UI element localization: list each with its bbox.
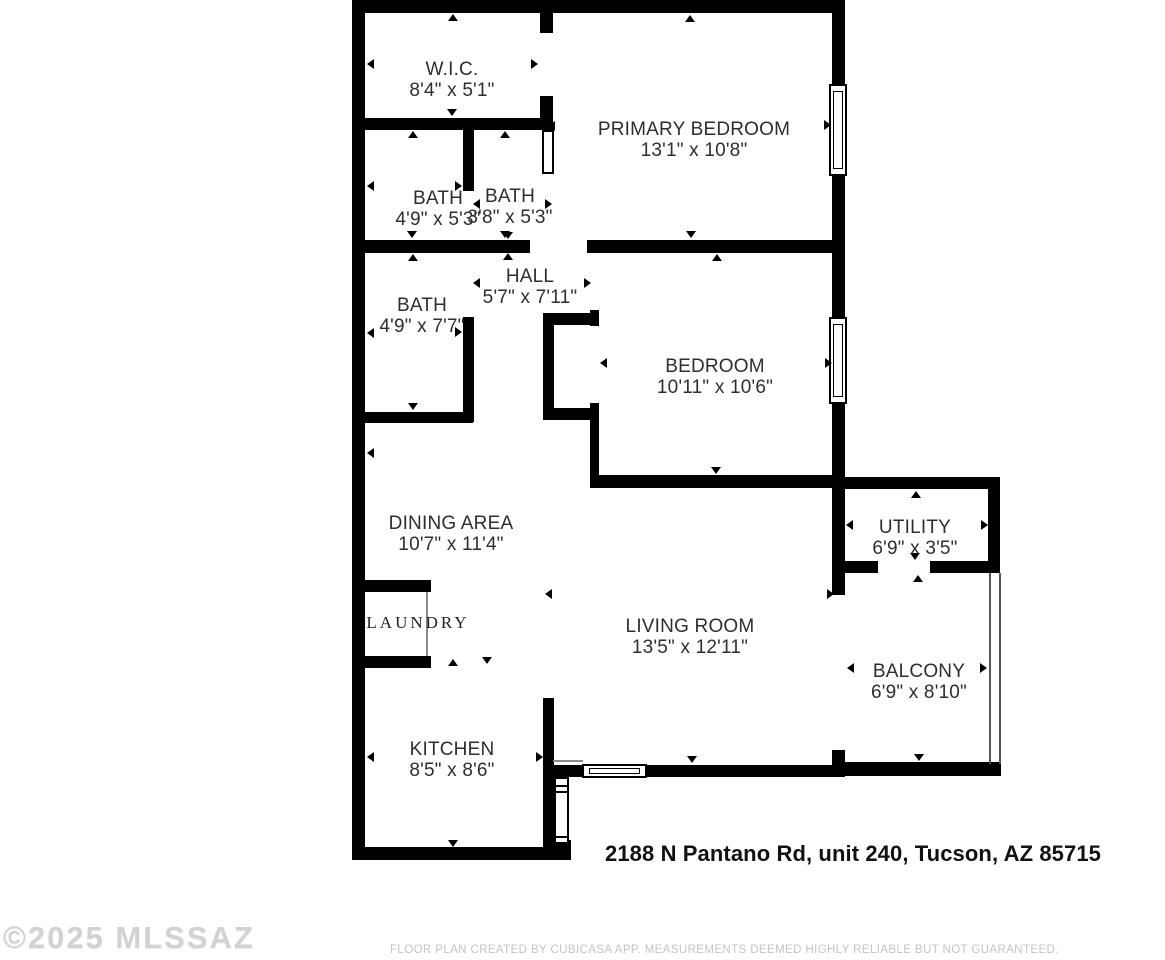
dimension-arrow (911, 491, 921, 498)
room-label-kitchen-12: KITCHEN8'5" x 8'6" (322, 739, 582, 781)
room-dimensions: 10'7" x 11'4" (321, 534, 581, 555)
room-label-bath-3: BATH3'8" x 5'3" (380, 186, 640, 228)
wall-segment (352, 580, 431, 592)
room-label-primary-bedroom-1: PRIMARY BEDROOM13'1" x 10'8" (564, 119, 824, 161)
window-pane (833, 91, 843, 169)
room-label-laundry-9: LAUNDRY (288, 612, 548, 633)
room-label-bedroom-6: BEDROOM10'11" x 10'6" (585, 356, 845, 398)
mls-watermark: ©2025 MLSSAZ (3, 920, 255, 956)
room-dimensions: 13'5" x 12'11" (560, 637, 820, 658)
wall-segment (352, 0, 845, 13)
room-name: BALCONY (789, 661, 1049, 682)
room-dimensions: 3'8" x 5'3" (380, 207, 640, 228)
room-label-balcony-11: BALCONY6'9" x 8'10" (789, 661, 1049, 703)
dimension-arrow (448, 14, 458, 21)
room-dimensions: 6'9" x 3'5" (785, 538, 1045, 559)
wall-segment (845, 561, 878, 573)
wall-segment (463, 127, 474, 191)
window-symbol (582, 764, 647, 778)
room-name: BATH (380, 186, 640, 207)
wall-segment (540, 0, 553, 33)
room-dimensions: 8'4" x 5'1" (322, 80, 582, 101)
dimension-arrow (447, 109, 457, 116)
wall-segment (587, 240, 845, 253)
room-name: HALL (400, 266, 660, 287)
property-address: 2188 N Pantano Rd, unit 240, Tucson, AZ … (605, 841, 1101, 867)
wall-segment (930, 561, 1000, 573)
dimension-arrow (548, 121, 555, 131)
dimension-arrow (827, 589, 834, 599)
room-label-bath-5: BATH4'9" x 7'7" (292, 295, 552, 337)
dimension-arrow (408, 254, 418, 261)
wall-segment (352, 118, 553, 130)
wall-segment (845, 762, 1001, 776)
wall-segment (590, 475, 845, 488)
room-name: LIVING ROOM (560, 616, 820, 637)
door-cap-line (556, 785, 567, 787)
dimension-arrow (824, 120, 831, 130)
room-dimensions: 13'1" x 10'8" (564, 140, 824, 161)
dimension-arrow (500, 131, 510, 138)
dimension-arrow (408, 403, 418, 410)
room-dimensions: 10'11" x 10'6" (585, 377, 845, 398)
room-name: KITCHEN (322, 739, 582, 760)
wall-segment (352, 656, 431, 668)
door-cap-line (556, 791, 567, 793)
dimension-arrow (545, 589, 552, 599)
door-cap-line (556, 836, 567, 838)
dimension-arrow (408, 131, 418, 138)
dimension-arrow (686, 231, 696, 238)
dimension-arrow (685, 15, 695, 22)
floor-plan: W.I.C.8'4" x 5'1"PRIMARY BEDROOM13'1" x … (0, 0, 1165, 960)
dimension-arrow (914, 754, 924, 761)
wall-segment (845, 477, 1000, 489)
dimension-arrow (913, 575, 923, 582)
room-label-living-room-10: LIVING ROOM13'5" x 12'11" (560, 616, 820, 658)
room-label-utility-8: UTILITY6'9" x 3'5" (785, 517, 1045, 559)
wall-segment (352, 240, 530, 253)
room-name: BATH (292, 295, 552, 316)
dimension-arrow (367, 448, 374, 458)
dimension-arrow (448, 840, 458, 847)
room-dimensions: 8'5" x 8'6" (322, 760, 582, 781)
room-dimensions: 4'9" x 7'7" (292, 316, 552, 337)
dimension-arrow (407, 231, 417, 238)
room-name: BEDROOM (585, 356, 845, 377)
window-pane (589, 768, 640, 774)
room-name: DINING AREA (321, 513, 581, 534)
room-dimensions: 6'9" x 8'10" (789, 682, 1049, 703)
dimension-arrow (503, 232, 513, 239)
room-label-w-i-c-0: W.I.C.8'4" x 5'1" (322, 59, 582, 101)
footer-disclaimer: FLOOR PLAN CREATED BY CUBICASA APP. MEAS… (390, 944, 1059, 956)
door-symbol (542, 130, 554, 174)
room-name: PRIMARY BEDROOM (564, 119, 824, 140)
dimension-arrow (482, 657, 492, 664)
door-symbol (554, 777, 569, 844)
wall-segment (352, 847, 570, 860)
wall-segment (590, 310, 599, 326)
dimension-arrow (712, 254, 722, 261)
dimension-arrow (711, 467, 721, 474)
room-name: LAUNDRY (288, 612, 548, 633)
room-name: W.I.C. (322, 59, 582, 80)
dimension-arrow (503, 253, 513, 260)
dimension-arrow (687, 756, 697, 763)
floor-plan-page: W.I.C.8'4" x 5'1"PRIMARY BEDROOM13'1" x … (0, 0, 1165, 960)
room-name: UTILITY (785, 517, 1045, 538)
room-label-dining-area-7: DINING AREA10'7" x 11'4" (321, 513, 581, 555)
wall-segment (647, 765, 845, 777)
wall-segment (352, 412, 473, 423)
window-symbol (829, 84, 847, 176)
dimension-arrow (448, 659, 458, 666)
